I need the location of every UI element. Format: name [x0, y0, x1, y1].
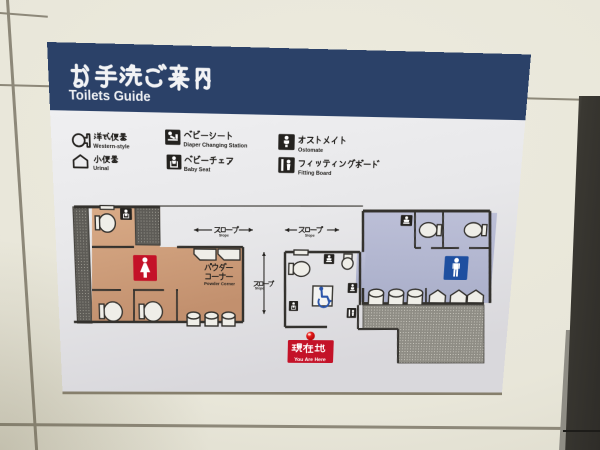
svg-text:Powder Corner: Powder Corner	[204, 281, 235, 287]
svg-text:Slope: Slope	[219, 233, 230, 238]
svg-text:Toilets Guide: Toilets Guide	[68, 87, 151, 105]
svg-text:You Are Here: You Are Here	[294, 358, 326, 363]
svg-text:Slope: Slope	[255, 286, 265, 291]
svg-text:Urinal: Urinal	[93, 166, 109, 172]
svg-text:Fitting Board: Fitting Board	[298, 171, 332, 177]
svg-text:Western-style: Western-style	[93, 144, 130, 150]
svg-text:Baby Seat: Baby Seat	[184, 167, 210, 173]
svg-text:Diaper Changing Station: Diaper Changing Station	[183, 143, 247, 150]
svg-text:Ostomate: Ostomate	[298, 148, 324, 154]
svg-text:Slope: Slope	[305, 233, 316, 238]
